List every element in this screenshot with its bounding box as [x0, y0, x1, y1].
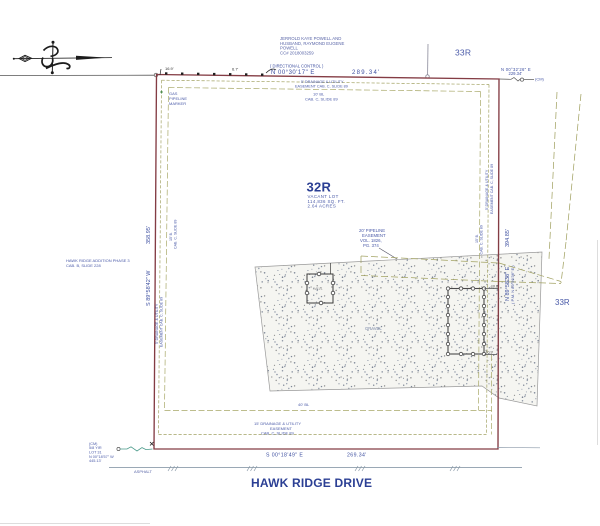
svg-text:5' DRAINAGE & UTILITY: 5' DRAINAGE & UTILITY: [301, 80, 344, 84]
svg-text:229.34': 229.34': [509, 71, 523, 76]
svg-text:EASEMENT CAB. C, SLIDE 89: EASEMENT CAB. C, SLIDE 89: [490, 164, 494, 214]
svg-text:6.7': 6.7': [232, 67, 239, 72]
svg-text:WELL: WELL: [313, 287, 323, 291]
svg-text:32R: 32R: [307, 180, 332, 195]
svg-text:LOT 31: LOT 31: [89, 450, 102, 454]
svg-text:CC# 2018003259: CC# 2018003259: [280, 50, 314, 55]
svg-text:EASEMENT CAB. C, SLIDE 89: EASEMENT CAB. C, SLIDE 89: [295, 85, 348, 89]
svg-text:10.8': 10.8': [491, 285, 499, 289]
svg-text:(CM): (CM): [535, 76, 545, 81]
svg-text:EASEMENT CAB. C, SLIDE 89: EASEMENT CAB. C, SLIDE 89: [160, 297, 164, 347]
svg-text:GRAVEL: GRAVEL: [365, 326, 382, 331]
svg-text:15' B.: 15' B.: [169, 232, 173, 241]
svg-text:N 00°30'17" E: N 00°30'17" E: [271, 70, 315, 76]
svg-text:33R: 33R: [455, 48, 471, 58]
svg-text:358.95': 358.95': [146, 226, 152, 244]
svg-text:MARKER: MARKER: [169, 101, 186, 106]
svg-text:CAB. C, SLIDE 89: CAB. C, SLIDE 89: [174, 220, 178, 249]
svg-text:394.85': 394.85': [505, 229, 511, 247]
svg-text:S 89°58'42" W: S 89°58'42" W: [146, 270, 152, 306]
svg-text:10.9': 10.9': [486, 351, 494, 355]
svg-text:( DIRECTIONAL CONTROL ): ( DIRECTIONAL CONTROL ): [270, 64, 324, 69]
svg-text:2.64 ACRES: 2.64 ACRES: [308, 204, 337, 209]
svg-text:CAB. B, SLIDE 228: CAB. B, SLIDE 228: [66, 263, 101, 268]
svg-text:5' DRAINAGE & UTILITY: 5' DRAINAGE & UTILITY: [155, 303, 159, 344]
svg-text:CAB. C, SLIDE 89: CAB. C, SLIDE 89: [261, 430, 294, 435]
svg-text:( P.M. N 89°56'36" E ): ( P.M. N 89°56'36" E ): [510, 265, 515, 304]
svg-text:16.9': 16.9': [165, 66, 174, 71]
svg-text:CAB. C, SLIDE 89: CAB. C, SLIDE 89: [305, 97, 338, 102]
svg-text:445.13': 445.13': [89, 459, 102, 463]
svg-text:CAB. C, SLIDE 89: CAB. C, SLIDE 89: [480, 225, 484, 254]
svg-text:40' BL: 40' BL: [298, 402, 310, 407]
svg-text:269.34': 269.34': [347, 453, 367, 459]
svg-text:33R: 33R: [555, 298, 570, 307]
svg-text:289.34': 289.34': [352, 70, 381, 76]
svg-text:ASPHALT: ASPHALT: [134, 469, 152, 474]
svg-text:HAWK RIDGE DRIVE: HAWK RIDGE DRIVE: [251, 476, 372, 490]
svg-text:15' B.: 15' B.: [475, 234, 479, 243]
svg-text:S 00°18'49" E: S 00°18'49" E: [266, 453, 303, 459]
svg-text:PG. 374: PG. 374: [363, 243, 379, 248]
svg-text:5' DRAINAGE & UTILITY: 5' DRAINAGE & UTILITY: [485, 169, 489, 210]
